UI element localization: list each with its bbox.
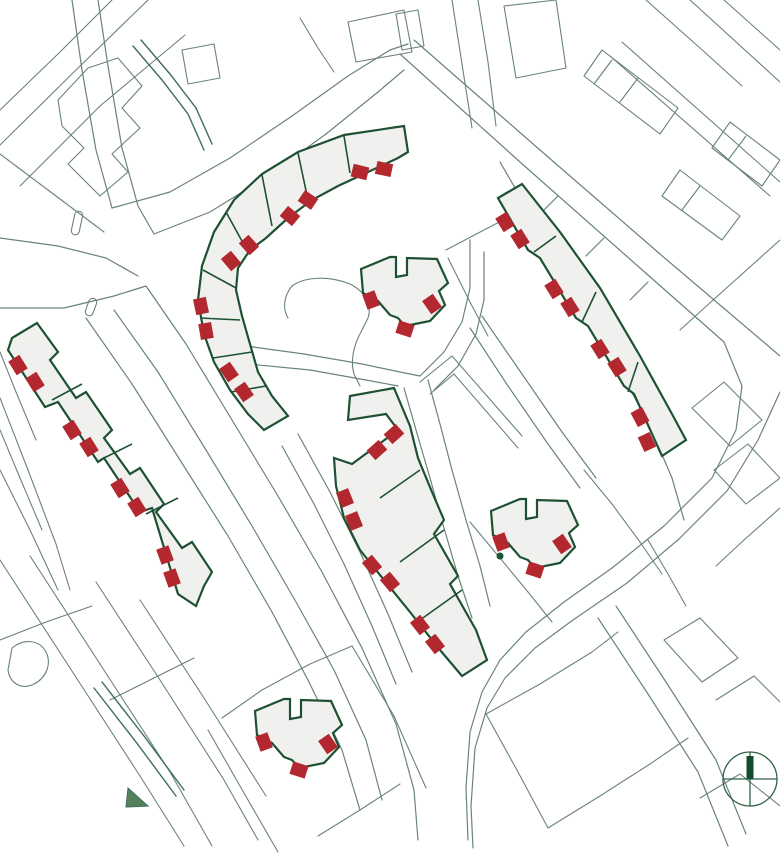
parcel-line	[594, 60, 612, 84]
footpath-line	[94, 688, 176, 796]
footpath-line	[133, 46, 204, 150]
parcel-line	[140, 600, 266, 796]
parcel-line	[182, 44, 220, 84]
street-line	[0, 286, 146, 308]
parcel-line	[584, 50, 678, 134]
parcel-line	[682, 186, 700, 210]
parcel-line	[716, 676, 780, 702]
entrance-marker	[375, 161, 393, 177]
parcel-line	[300, 18, 334, 72]
street-line	[598, 618, 728, 846]
parcel-line	[664, 618, 738, 682]
street-line	[470, 328, 580, 488]
parcel-line	[110, 658, 194, 700]
parcel-line	[646, 0, 742, 86]
parcel-line	[690, 0, 780, 82]
pond-outline	[8, 642, 48, 687]
street-line	[72, 0, 112, 208]
green-dot-marker	[497, 553, 504, 560]
parcel-line	[0, 398, 70, 590]
parcel-line	[348, 10, 412, 62]
parcel-line	[96, 582, 258, 840]
street-line	[0, 238, 138, 276]
parcel-line	[548, 738, 688, 828]
green-area-patch	[126, 788, 148, 807]
footpath-line	[141, 40, 212, 144]
street-line	[246, 346, 420, 376]
parcel-line	[318, 784, 400, 836]
parcel-line	[0, 606, 92, 640]
building-footprint-middle-terrace	[334, 388, 487, 676]
parcel-line	[0, 0, 148, 145]
parcel-line	[0, 0, 112, 110]
parcel-line	[0, 470, 58, 590]
building-layer	[8, 126, 686, 768]
site-plan-canvas	[0, 0, 780, 856]
parcel-line	[620, 78, 638, 102]
building-footprint-point-block-south	[255, 699, 342, 768]
parcel-line	[728, 136, 746, 160]
entrance-marker	[198, 322, 214, 340]
parcel-line	[20, 35, 185, 186]
pond-outline	[285, 286, 292, 318]
north-arrow	[747, 756, 754, 779]
street-line	[400, 54, 742, 840]
parcel-line	[486, 632, 618, 714]
parcel-line	[504, 0, 566, 78]
parcel-line	[716, 508, 780, 566]
parcel-line	[724, 0, 780, 50]
parcel-line	[662, 170, 740, 240]
parcel-line	[452, 0, 472, 128]
parcel-line	[0, 154, 104, 232]
parcel-line	[0, 430, 42, 530]
building-footprint-west-terrace	[8, 323, 212, 606]
parcel-line	[0, 560, 184, 846]
traffic-island	[71, 210, 84, 235]
street-line	[630, 282, 648, 300]
parcel-line	[420, 356, 522, 436]
north-arrow-compass	[723, 752, 777, 806]
street-line	[586, 238, 604, 256]
parcel-line	[692, 382, 762, 446]
parcel-line	[610, 56, 770, 196]
site-plan-map	[0, 0, 780, 856]
street-line	[616, 606, 746, 834]
parcel-line	[622, 42, 780, 182]
parcel-line	[478, 0, 496, 126]
street-line	[482, 316, 596, 478]
parcel-line	[486, 714, 548, 828]
